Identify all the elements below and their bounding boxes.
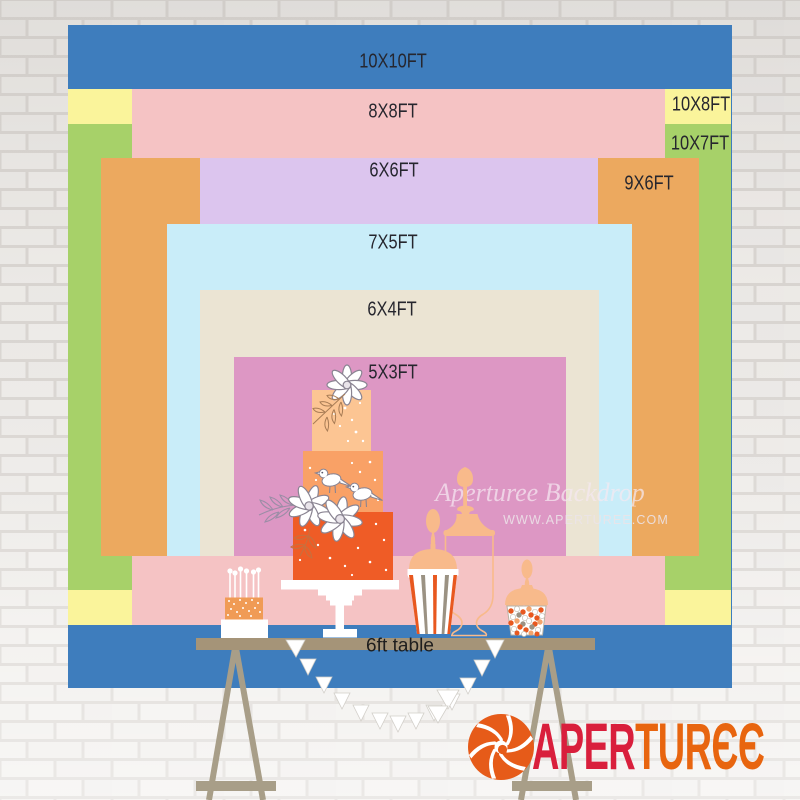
svg-text:6ft table: 6ft table (366, 636, 434, 657)
